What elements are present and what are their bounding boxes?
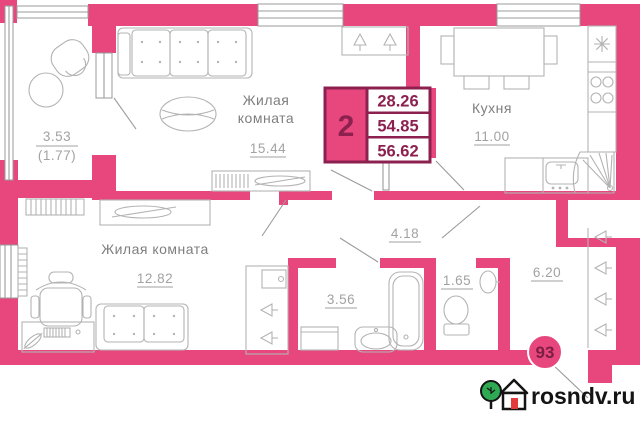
floor-plan: 3.53 (1.77) Жилая — [0, 0, 640, 425]
rooms-count: 2 — [338, 110, 355, 143]
living1-area: 15.44 — [250, 141, 286, 156]
bathroom-area: 3.56 — [327, 292, 355, 307]
windows — [0, 4, 580, 298]
living2-door-swing — [262, 200, 286, 236]
armchair-icon — [46, 35, 96, 84]
window-kitchen-top — [497, 4, 580, 26]
sofa2-icon — [96, 304, 188, 350]
room-corridor: 4.18 — [389, 226, 421, 242]
balcony-glazing-top — [17, 6, 88, 18]
bathtub-icon — [389, 272, 423, 350]
wc-sink-icon — [480, 271, 500, 293]
radiator-living2-left — [18, 248, 27, 296]
kitchen-label: Кухня — [472, 100, 512, 116]
living1-door-leaf — [383, 163, 389, 190]
living1-label-line1: Жилая — [243, 92, 290, 108]
closet-top-icon — [342, 27, 408, 55]
tv-stand-icon — [212, 171, 310, 191]
summary-box: 2 28.26 54.85 56.62 — [325, 88, 430, 162]
balcony-door-swing — [114, 98, 136, 129]
balcony-glazing-left — [5, 6, 13, 180]
flat-number: 93 — [536, 343, 555, 362]
window-living1-top — [258, 4, 343, 26]
living2-area: 12.82 — [137, 271, 173, 286]
room-balcony: 3.53 (1.77) — [29, 35, 96, 163]
watermark: rosndv.ru — [481, 380, 635, 409]
room-living-2: Жилая комната 12.82 — [21, 200, 288, 354]
office-chair-icon — [31, 272, 91, 326]
toilet-icon — [444, 296, 469, 335]
radiator-living2-top — [26, 199, 84, 215]
floor-plan-page: 3.53 (1.77) Жилая — [0, 0, 640, 425]
wardrobe2-icon — [246, 266, 288, 354]
living1-door-swing — [331, 170, 372, 191]
kitchen-door-swing — [436, 161, 464, 190]
summary-row2: 54.85 — [377, 118, 418, 136]
dining-table-icon — [441, 28, 557, 89]
balcony-area: 3.53 — [43, 129, 71, 144]
summary-row1: 28.26 — [377, 93, 418, 111]
bathroom-door-swing — [340, 238, 378, 262]
summary-row3: 56.62 — [377, 143, 418, 161]
sofa-icon — [118, 28, 252, 78]
stove-icon — [591, 77, 613, 103]
rug-icon — [160, 97, 216, 131]
flat-number-badge: 93 — [528, 335, 562, 369]
room-kitchen: Кухня 11.00 — [441, 26, 616, 193]
bath-sink-icon — [355, 327, 397, 352]
tree-icon — [481, 381, 501, 409]
window-living2-left — [0, 245, 18, 298]
balcony-area-coef: (1.77) — [38, 148, 76, 163]
sink-counter-icon — [505, 158, 588, 193]
room-bathroom: 3.56 — [301, 272, 423, 352]
window-balcony-door — [96, 53, 112, 98]
living1-label-line2: комната — [238, 110, 294, 126]
tv-stand2-icon — [100, 200, 210, 225]
round-table-icon — [29, 73, 63, 107]
site-name: rosndv.ru — [531, 383, 635, 409]
house-icon — [501, 380, 527, 409]
hallway-area: 6.20 — [533, 265, 561, 280]
living2-label: Жилая комната — [101, 241, 209, 257]
kitchen-area: 11.00 — [474, 129, 509, 144]
wc-area: 1.65 — [443, 273, 471, 288]
kitchen-counter-icon — [588, 26, 616, 152]
vent-star-icon — [594, 36, 610, 52]
corridor-area: 4.18 — [391, 226, 419, 241]
wc-door-swing — [442, 206, 480, 238]
room-wc: 1.65 — [441, 271, 500, 335]
washing-machine-icon — [301, 327, 338, 350]
